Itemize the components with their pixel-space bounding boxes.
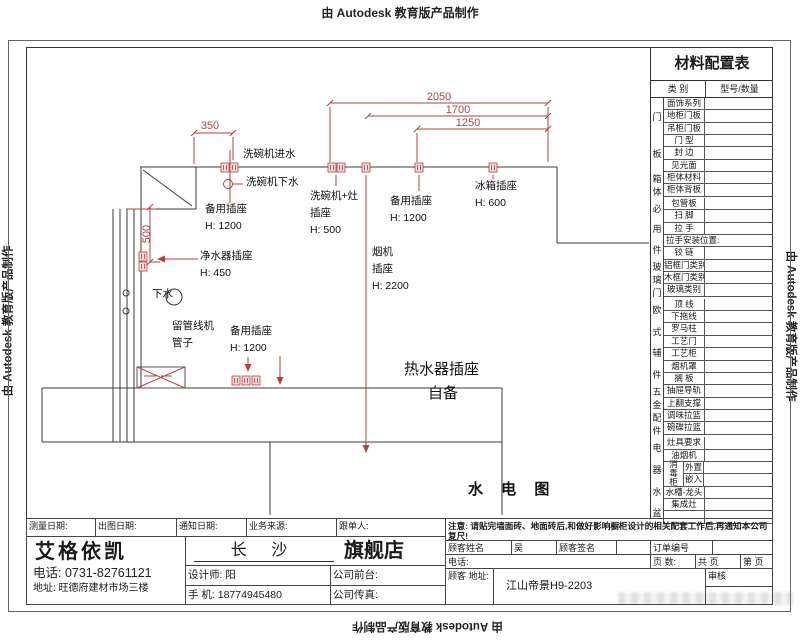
order-number-value xyxy=(712,540,773,555)
dim-500: 500 xyxy=(141,225,153,243)
table-group-label: 五金配件 xyxy=(651,385,664,437)
table-row: 集成灶 xyxy=(664,499,773,511)
table-row: 抽屉导轨 xyxy=(664,385,773,397)
table-row: 调味拉篮 xyxy=(664,410,773,422)
mobile-cell: 手 机: 18774945480 xyxy=(185,585,331,605)
table-group-label: 必用件 xyxy=(651,198,664,260)
cad-sheet: { "colors": { "accent_red": "#b2433e", "… xyxy=(0,0,800,640)
company-address: 地址: 旺德府建材市场三楼 xyxy=(29,582,183,595)
label-spare-socket-mid: 备用插座 H: 1200 xyxy=(390,193,432,227)
label-drain: 下水 xyxy=(152,286,173,303)
material-table-body: 门板面饰系列地柜门板吊柜门板门 型封 边见光面箱体柜体材料柜体背板必用件包管板扫… xyxy=(651,98,773,524)
table-row: 顶 线 xyxy=(664,299,773,311)
label-spare-socket-bottom: 备用插座 H: 1200 xyxy=(230,323,272,357)
table-group: 必用件包管板扫 脚拉 手拉手安装位置:铰 链 xyxy=(651,198,773,260)
table-row: 消毒柜外置嵌入 xyxy=(664,462,773,487)
table-group-label: 箱体 xyxy=(651,172,664,198)
table-row: 面饰系列 xyxy=(664,98,773,110)
table-row: 门 型 xyxy=(664,135,773,147)
column-header-category: 类 别 xyxy=(651,81,706,97)
customer-sign-label: 顾客签名 xyxy=(556,540,617,555)
column-header-model: 型号/数量 xyxy=(706,81,773,97)
measure-date-cell: 测量日期: xyxy=(26,518,96,537)
notify-date-cell: 通知日期: xyxy=(176,518,247,537)
label-dishwasher-inlet: 洗碗机进水 xyxy=(243,146,296,163)
table-row: 碗碟拉篮 xyxy=(664,422,773,434)
notice-cell: 注意: 请贴完墙面砖、地面砖后,和做好影响橱柜设计的相关配套工作后,再通知本公司… xyxy=(445,518,773,541)
table-row: 灶具要求 xyxy=(664,437,773,449)
table-row: 吊柜门板 xyxy=(664,123,773,135)
table-row: 封 边 xyxy=(664,147,773,159)
table-row: 工艺柜 xyxy=(664,348,773,360)
company-info-cell: 艾格依凯 电话: 0731-82761121 地址: 旺德府建材市场三楼 xyxy=(26,536,186,605)
table-group-label: 门板 xyxy=(651,98,664,172)
label-fridge-socket: 冰箱插座 H: 600 xyxy=(475,178,517,212)
table-row: 拉手安装位置: xyxy=(664,235,773,247)
plot-date-cell: 出图日期: xyxy=(95,518,177,537)
audit-label-cell: 审核 xyxy=(705,568,773,587)
table-row: 水槽-龙头 xyxy=(664,487,773,499)
follow-up-cell: 跟单人: xyxy=(336,518,446,537)
table-row: 下拖线 xyxy=(664,311,773,323)
business-source-cell: 业务来源: xyxy=(246,518,337,537)
dimension-and-leader-lines xyxy=(126,100,551,449)
customer-sign-value xyxy=(616,540,651,555)
table-row: 柜体背板 xyxy=(664,184,773,196)
label-water-heater: 热水器插座 自备 xyxy=(404,358,479,406)
dim-350: 350 xyxy=(201,120,219,132)
pages-label-cell: 页 数: xyxy=(650,554,696,569)
table-row: 工艺门 xyxy=(664,336,773,348)
table-group: 箱体柜体材料柜体背板 xyxy=(651,172,773,198)
material-table-header: 类 别 型号/数量 xyxy=(651,81,773,98)
customer-name-label: 顾客姓名 xyxy=(445,540,512,555)
label-dishwasher-stove-socket: 洗碗机+灶 插座 H: 500 xyxy=(310,188,358,239)
fax-cell: 公司传真: xyxy=(330,585,446,605)
drawing-title: 水 电 图 xyxy=(468,478,556,499)
pages-total-cell: 共 页 xyxy=(695,554,741,569)
order-number-label: 订单编号 xyxy=(650,540,713,555)
table-row: 地柜门板 xyxy=(664,110,773,122)
customer-phone-cell: 电话: xyxy=(445,554,651,569)
company-phone: 电话: 0731-82761121 xyxy=(29,565,183,582)
table-row: 搁 板 xyxy=(664,373,773,385)
label-spare-socket-top: 备用插座 H: 1200 xyxy=(205,201,247,235)
customer-address-label: 顾客 地址: xyxy=(445,568,494,605)
front-desk-cell: 公司前台: xyxy=(330,565,446,586)
table-group: 五金配件抽屉导轨上翻支撑调味拉篮碗碟拉篮 xyxy=(651,385,773,437)
table-group: 欧式辅件顶 线下拖线罗马柱工艺门工艺柜烟机罩搁 板 xyxy=(651,299,773,385)
table-row: 上翻支撑 xyxy=(664,398,773,410)
store-type: 旗舰店 xyxy=(344,540,404,562)
store-cell: 长 沙 旗舰店 xyxy=(185,536,446,566)
table-row: 见光面 xyxy=(664,160,773,172)
table-row: 木框门类别 xyxy=(664,272,773,284)
table-row: 罗马柱 xyxy=(664,323,773,335)
dim-1250: 1250 xyxy=(456,117,480,129)
table-group: 玻璃门铝框门类别木框门类别玻璃类别 xyxy=(651,260,773,299)
label-purifier-socket: 净水器插座 H: 450 xyxy=(200,248,253,282)
table-group-label: 电器水盆 xyxy=(651,437,664,523)
company-name: 艾格依凯 xyxy=(29,539,183,565)
table-row: 包管板 xyxy=(664,198,773,210)
page-number-cell: 第 页 xyxy=(740,554,773,569)
table-row: 扫 脚 xyxy=(664,210,773,222)
store-city: 长 沙 xyxy=(194,541,334,562)
designer-cell: 设计师: 阳 xyxy=(185,565,331,586)
table-row: 拉 手 xyxy=(664,223,773,235)
table-row: 柜体材料 xyxy=(664,172,773,184)
table-group-label: 欧式辅件 xyxy=(651,299,664,385)
material-table: 材料配置表 类 别 型号/数量 门板面饰系列地柜门板吊柜门板门 型封 边见光面箱… xyxy=(650,47,773,518)
table-row: 铰 链 xyxy=(664,247,773,259)
audit-value-cell xyxy=(705,586,773,605)
dim-1700: 1700 xyxy=(446,104,470,116)
dim-2050: 2050 xyxy=(427,91,451,103)
table-group: 门板面饰系列地柜门板吊柜门板门 型封 边见光面 xyxy=(651,98,773,172)
material-table-title: 材料配置表 xyxy=(651,47,773,81)
customer-name-value: 吴 xyxy=(511,540,557,555)
label-hood-socket: 烟机 插座 H: 2200 xyxy=(372,244,409,295)
table-group-label: 玻璃门 xyxy=(651,260,664,299)
label-pipe-reserve: 留管线机 管子 xyxy=(172,318,214,352)
table-group: 电器水盆灶具要求油烟机消毒柜外置嵌入水槽-龙头集成灶 xyxy=(651,437,773,523)
table-row: 玻璃类别 xyxy=(664,284,773,296)
table-row: 烟机罩 xyxy=(664,361,773,373)
label-dishwasher-drain: 洗碗机下水 xyxy=(246,174,299,191)
customer-address-value: 江山帝景H9-2203 xyxy=(493,568,706,605)
table-row: 铝框门类别 xyxy=(664,260,773,272)
